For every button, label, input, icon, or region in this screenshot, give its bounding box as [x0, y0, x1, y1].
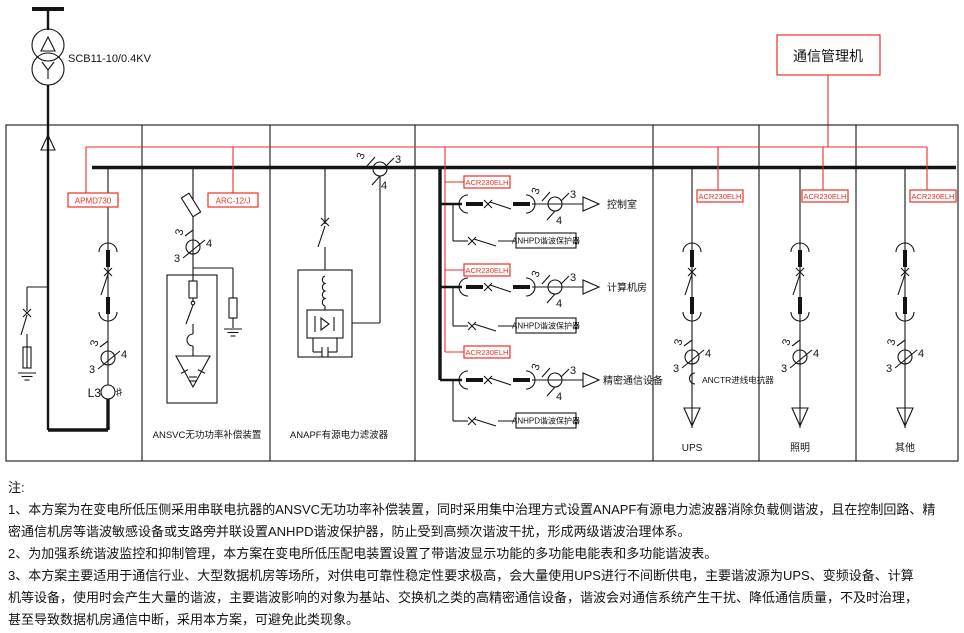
- anhpd-label: ANHPD谐波保护器: [512, 416, 580, 426]
- anhpd-branch: ANHPD谐波保护器: [453, 287, 580, 333]
- feeder-ct: [530, 186, 577, 227]
- anapf-panel: ANAPF有源电力滤波器: [290, 151, 401, 441]
- contactor-icon: [187, 334, 193, 346]
- notes-block: 注: 1、本方案为在变电所低压侧采用串联电抗器的ANSVC无功功率补偿装置，同时…: [8, 477, 960, 631]
- feeder-label: 计算机房: [607, 281, 647, 294]
- switchgear-outline: [6, 125, 958, 461]
- feeder-row-control-room: 控制室 ANHPD谐波保护器: [440, 186, 637, 248]
- feeder-ct: [530, 269, 577, 310]
- fuse-icon: [229, 298, 237, 318]
- feeder-label: 控制室: [607, 198, 637, 211]
- fuse-icon: [189, 281, 197, 298]
- note-line: 2、为加强系统谐波监控和抑制管理，本方案在变电所低压配电装置设置了带谐波显示功能…: [8, 543, 960, 565]
- capacitor-cabinet: [167, 275, 217, 403]
- feeder-breaker: [459, 371, 535, 389]
- ansvc-panel: ANSVC无功功率补偿装置 ARC-12/J: [153, 147, 262, 441]
- feeder-meter-label: ACR230ELH: [804, 192, 847, 201]
- ups-panel-label: UPS: [682, 443, 703, 454]
- anhpd-branch: ANHPD谐波保护器: [453, 380, 580, 428]
- anhpd-label: ANHPD谐波保护器: [512, 321, 580, 331]
- single-line-diagram: 3 3 4 3 3 4: [0, 0, 964, 478]
- transformer-symbol: SCB11-10/0.4KV: [32, 9, 152, 125]
- note-line: 3、本方案主要适用于通信行业、大型数据机房等场所，对供电可靠性稳定性要求极高，会…: [8, 565, 960, 587]
- delta-winding-icon: [41, 37, 55, 51]
- feeder-meter-label: ACR230ELH: [466, 178, 509, 187]
- feeder-label: 精密通信设备: [603, 374, 663, 387]
- igbt-module-icon: [307, 310, 343, 338]
- pt-branch: [18, 287, 48, 380]
- reactor-label: ANCTR进线电抗器: [702, 375, 774, 385]
- comm-manager: 通信管理机: [777, 35, 880, 147]
- comm-manager-label: 通信管理机: [793, 48, 863, 64]
- feeder-ct: [530, 362, 577, 403]
- note-line: 甚至导致数据机房通信中断，采用本方案，可避免此类现象。: [8, 609, 960, 631]
- lighting-panel: ACR230ELH 照明: [780, 147, 848, 454]
- feeder-row-precision-comm: 精密通信设备 ANHPD谐波保护器: [440, 362, 663, 428]
- feeder-meter-label: ACR230ELH: [466, 266, 509, 275]
- feeder-breaker: [459, 278, 535, 296]
- feeder-meter-label: ACR230ELH: [912, 192, 955, 201]
- meter-phase-label: L3: [88, 386, 102, 400]
- reactor-coil-icon: [322, 276, 325, 306]
- feeder-meter-label: ACR230ELH: [466, 348, 509, 357]
- apf-cabinet: [298, 270, 352, 357]
- feeder-panel: ACR230ELH ACR230ELH ACR230ELH 控制室 ANHPD谐…: [440, 147, 663, 428]
- feeder-breaker: [459, 195, 535, 213]
- feeder-row-computer-room: 计算机房 ANHPD谐波保护器: [440, 269, 647, 333]
- dc-capacitor-icon: [313, 338, 337, 357]
- anapf-panel-label: ANAPF有源电力滤波器: [290, 429, 389, 441]
- feeder-meter-label: ACR230ELH: [699, 192, 742, 201]
- ansvc-panel-label: ANSVC无功功率补偿装置: [153, 429, 262, 441]
- wye-winding-icon: [42, 62, 54, 79]
- note-line: 1、本方案为在变电所低压侧采用串联电抗器的ANSVC无功功率补偿装置，同时采用集…: [8, 499, 960, 521]
- incoming-meter-label: APMD730: [75, 197, 112, 206]
- other-panel: ACR230ELH 其他: [885, 147, 956, 454]
- svc-controller-label: ARC-12/J: [216, 197, 251, 206]
- meter-hash: #: [114, 384, 125, 399]
- other-panel-label: 其他: [895, 441, 915, 454]
- anhpd-label: ANHPD谐波保护器: [512, 236, 580, 246]
- fuse-icon: [181, 193, 200, 216]
- apf-bus-ct: [355, 151, 402, 192]
- notes-title: 注:: [8, 477, 960, 499]
- delta-capacitor-icon: [176, 356, 210, 387]
- incoming-panel: L3 # APMD730: [18, 125, 127, 430]
- transformer-label: SCB11-10/0.4KV: [68, 53, 152, 65]
- note-line: 机等设备，使用时会产生大量的谐波，主要谐波影响的对象为基站、交换机之类的高精密通…: [8, 587, 960, 609]
- lighting-panel-label: 照明: [790, 442, 810, 454]
- note-line: 密通信机房等谐波敏感设备或支路旁并联设置ANHPD谐波保护器，防止受到高频次谐波…: [8, 521, 960, 543]
